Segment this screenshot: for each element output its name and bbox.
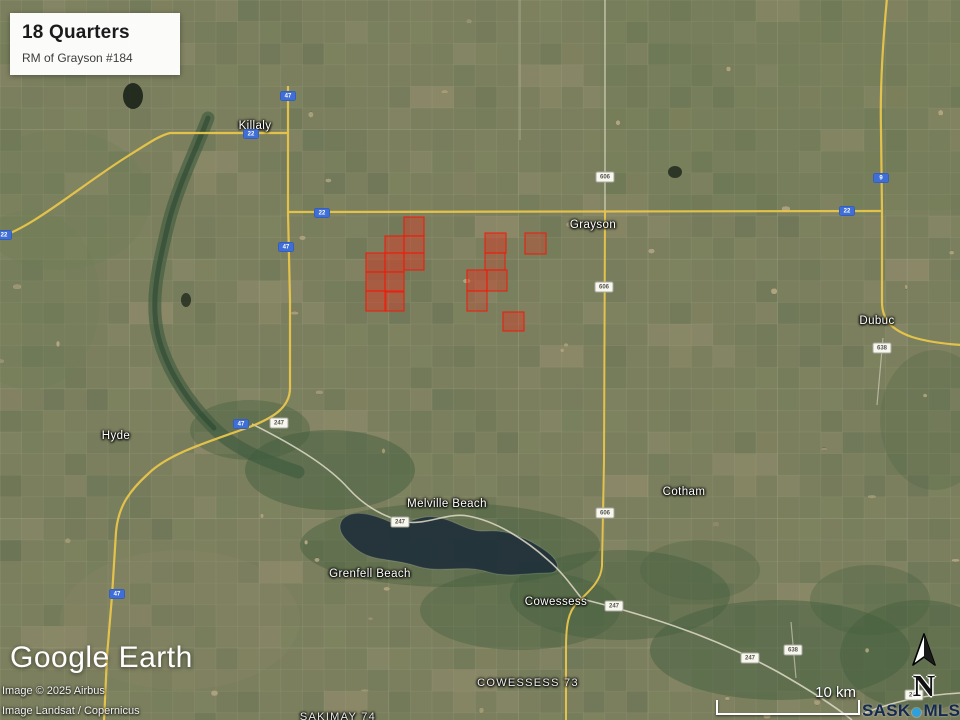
sask-mls-logo: SASK MLS ® <box>862 701 960 720</box>
parcel-quarter-11 <box>485 233 506 253</box>
parcel-quarter-9 <box>366 291 386 311</box>
highway-shield-606: 606 <box>596 172 615 183</box>
parcel-quarter-10 <box>385 292 404 311</box>
parcel-quarter-15 <box>487 270 507 291</box>
north-arrow-icon <box>906 633 942 667</box>
parcel-quarter-16 <box>467 291 487 311</box>
compass: N <box>906 633 942 699</box>
scale-label: 10 km <box>815 684 856 701</box>
highway-shield-22: 22 <box>244 130 259 139</box>
parcel-quarter-2 <box>385 236 404 253</box>
highway-shield-47: 47 <box>279 243 294 252</box>
highway-shield-247: 247 <box>391 517 410 528</box>
highway-shield-606: 606 <box>595 282 614 293</box>
highway-shield-22: 22 <box>840 207 855 216</box>
google-earth-logo: Google Earth <box>10 641 193 675</box>
scale-bar: 10 km <box>716 700 860 715</box>
compass-n-label: N <box>906 673 942 699</box>
parcel-quarter-14 <box>467 270 487 291</box>
highway-shield-247: 247 <box>270 418 289 429</box>
highway-22-east <box>288 211 882 212</box>
highway-shield-47: 47 <box>110 590 125 599</box>
mls-logo-dot-icon <box>912 708 921 717</box>
highway-shield-247: 247 <box>741 653 760 664</box>
place-label-grayson: Grayson <box>570 219 616 231</box>
parcel-quarter-12 <box>525 233 546 254</box>
parcel-quarter-7 <box>366 272 385 291</box>
parcel-quarter-5 <box>385 253 404 272</box>
mls-logo-mls: MLS <box>923 701 960 720</box>
place-label-cowessess: Cowessess <box>525 596 587 608</box>
listing-subtitle: RM of Grayson #184 <box>22 51 168 65</box>
parcel-quarter-1 <box>404 217 424 236</box>
highway-shield-22: 22 <box>0 231 12 240</box>
highway-shield-47: 47 <box>281 92 296 101</box>
highway-shield-247: 247 <box>605 601 624 612</box>
parcel-quarter-17 <box>503 312 524 331</box>
parcel-quarter-6 <box>404 253 424 270</box>
parcel-quarter-13 <box>485 253 505 270</box>
highway-shield-47: 47 <box>234 420 249 429</box>
place-label-cotham: Cotham <box>663 486 706 498</box>
place-label-dubuc: Dubuc <box>859 315 894 327</box>
parcel-quarter-4 <box>366 253 385 272</box>
highway-shield-9: 9 <box>874 174 889 183</box>
imagery-credit-landsat: Image Landsat / Copernicus <box>2 705 140 717</box>
parcel-quarter-8 <box>385 272 404 291</box>
place-label-cowessess-73: COWESSESS 73 <box>477 677 579 689</box>
mls-logo-sask: SASK <box>862 701 910 720</box>
highway-shield-638: 638 <box>873 343 892 354</box>
place-label-hyde: Hyde <box>102 430 130 442</box>
parcel-quarter-3 <box>404 236 424 253</box>
listing-title-card: 18 Quarters RM of Grayson #184 <box>10 13 180 75</box>
place-label-melville-beach: Melville Beach <box>407 498 487 510</box>
satellite-map <box>0 0 960 720</box>
place-label-grenfell-beach: Grenfell Beach <box>329 568 411 580</box>
highway-shield-638: 638 <box>784 645 803 656</box>
highway-shield-606: 606 <box>596 508 615 519</box>
google-earth-map-view[interactable]: KillalyGraysonDubucHydeCothamMelville Be… <box>0 0 960 720</box>
place-label-sakimay-74: SAKIMAY 74 <box>300 711 376 720</box>
highway-shield-22: 22 <box>315 209 330 218</box>
pond <box>123 83 143 109</box>
listing-title: 18 Quarters <box>22 22 168 44</box>
imagery-credit-airbus: Image © 2025 Airbus <box>2 685 105 697</box>
